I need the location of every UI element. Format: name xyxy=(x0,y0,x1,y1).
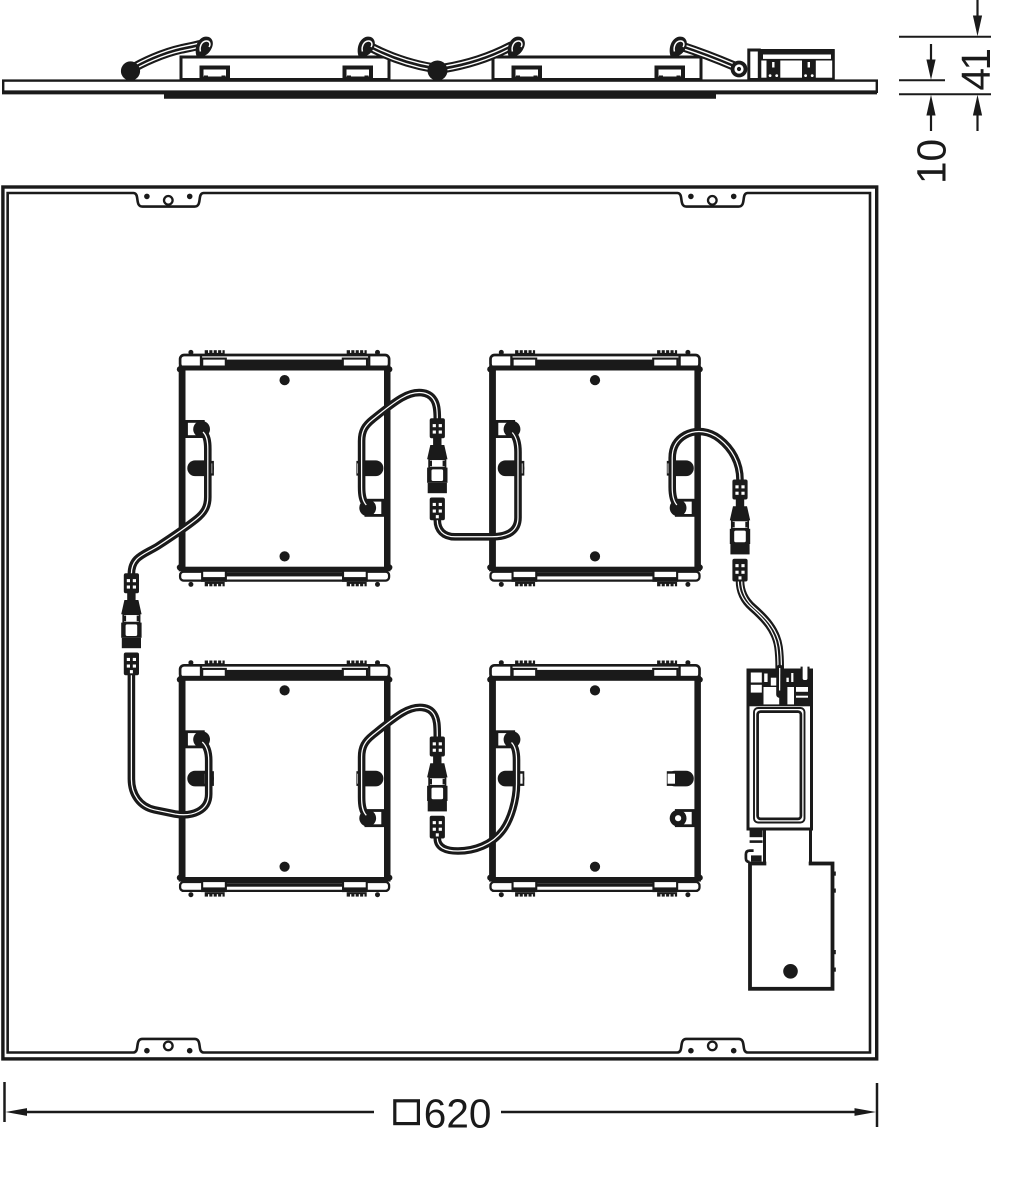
svg-text:620: 620 xyxy=(424,1090,492,1136)
svg-text:10: 10 xyxy=(909,139,955,184)
svg-text:41: 41 xyxy=(953,49,999,90)
